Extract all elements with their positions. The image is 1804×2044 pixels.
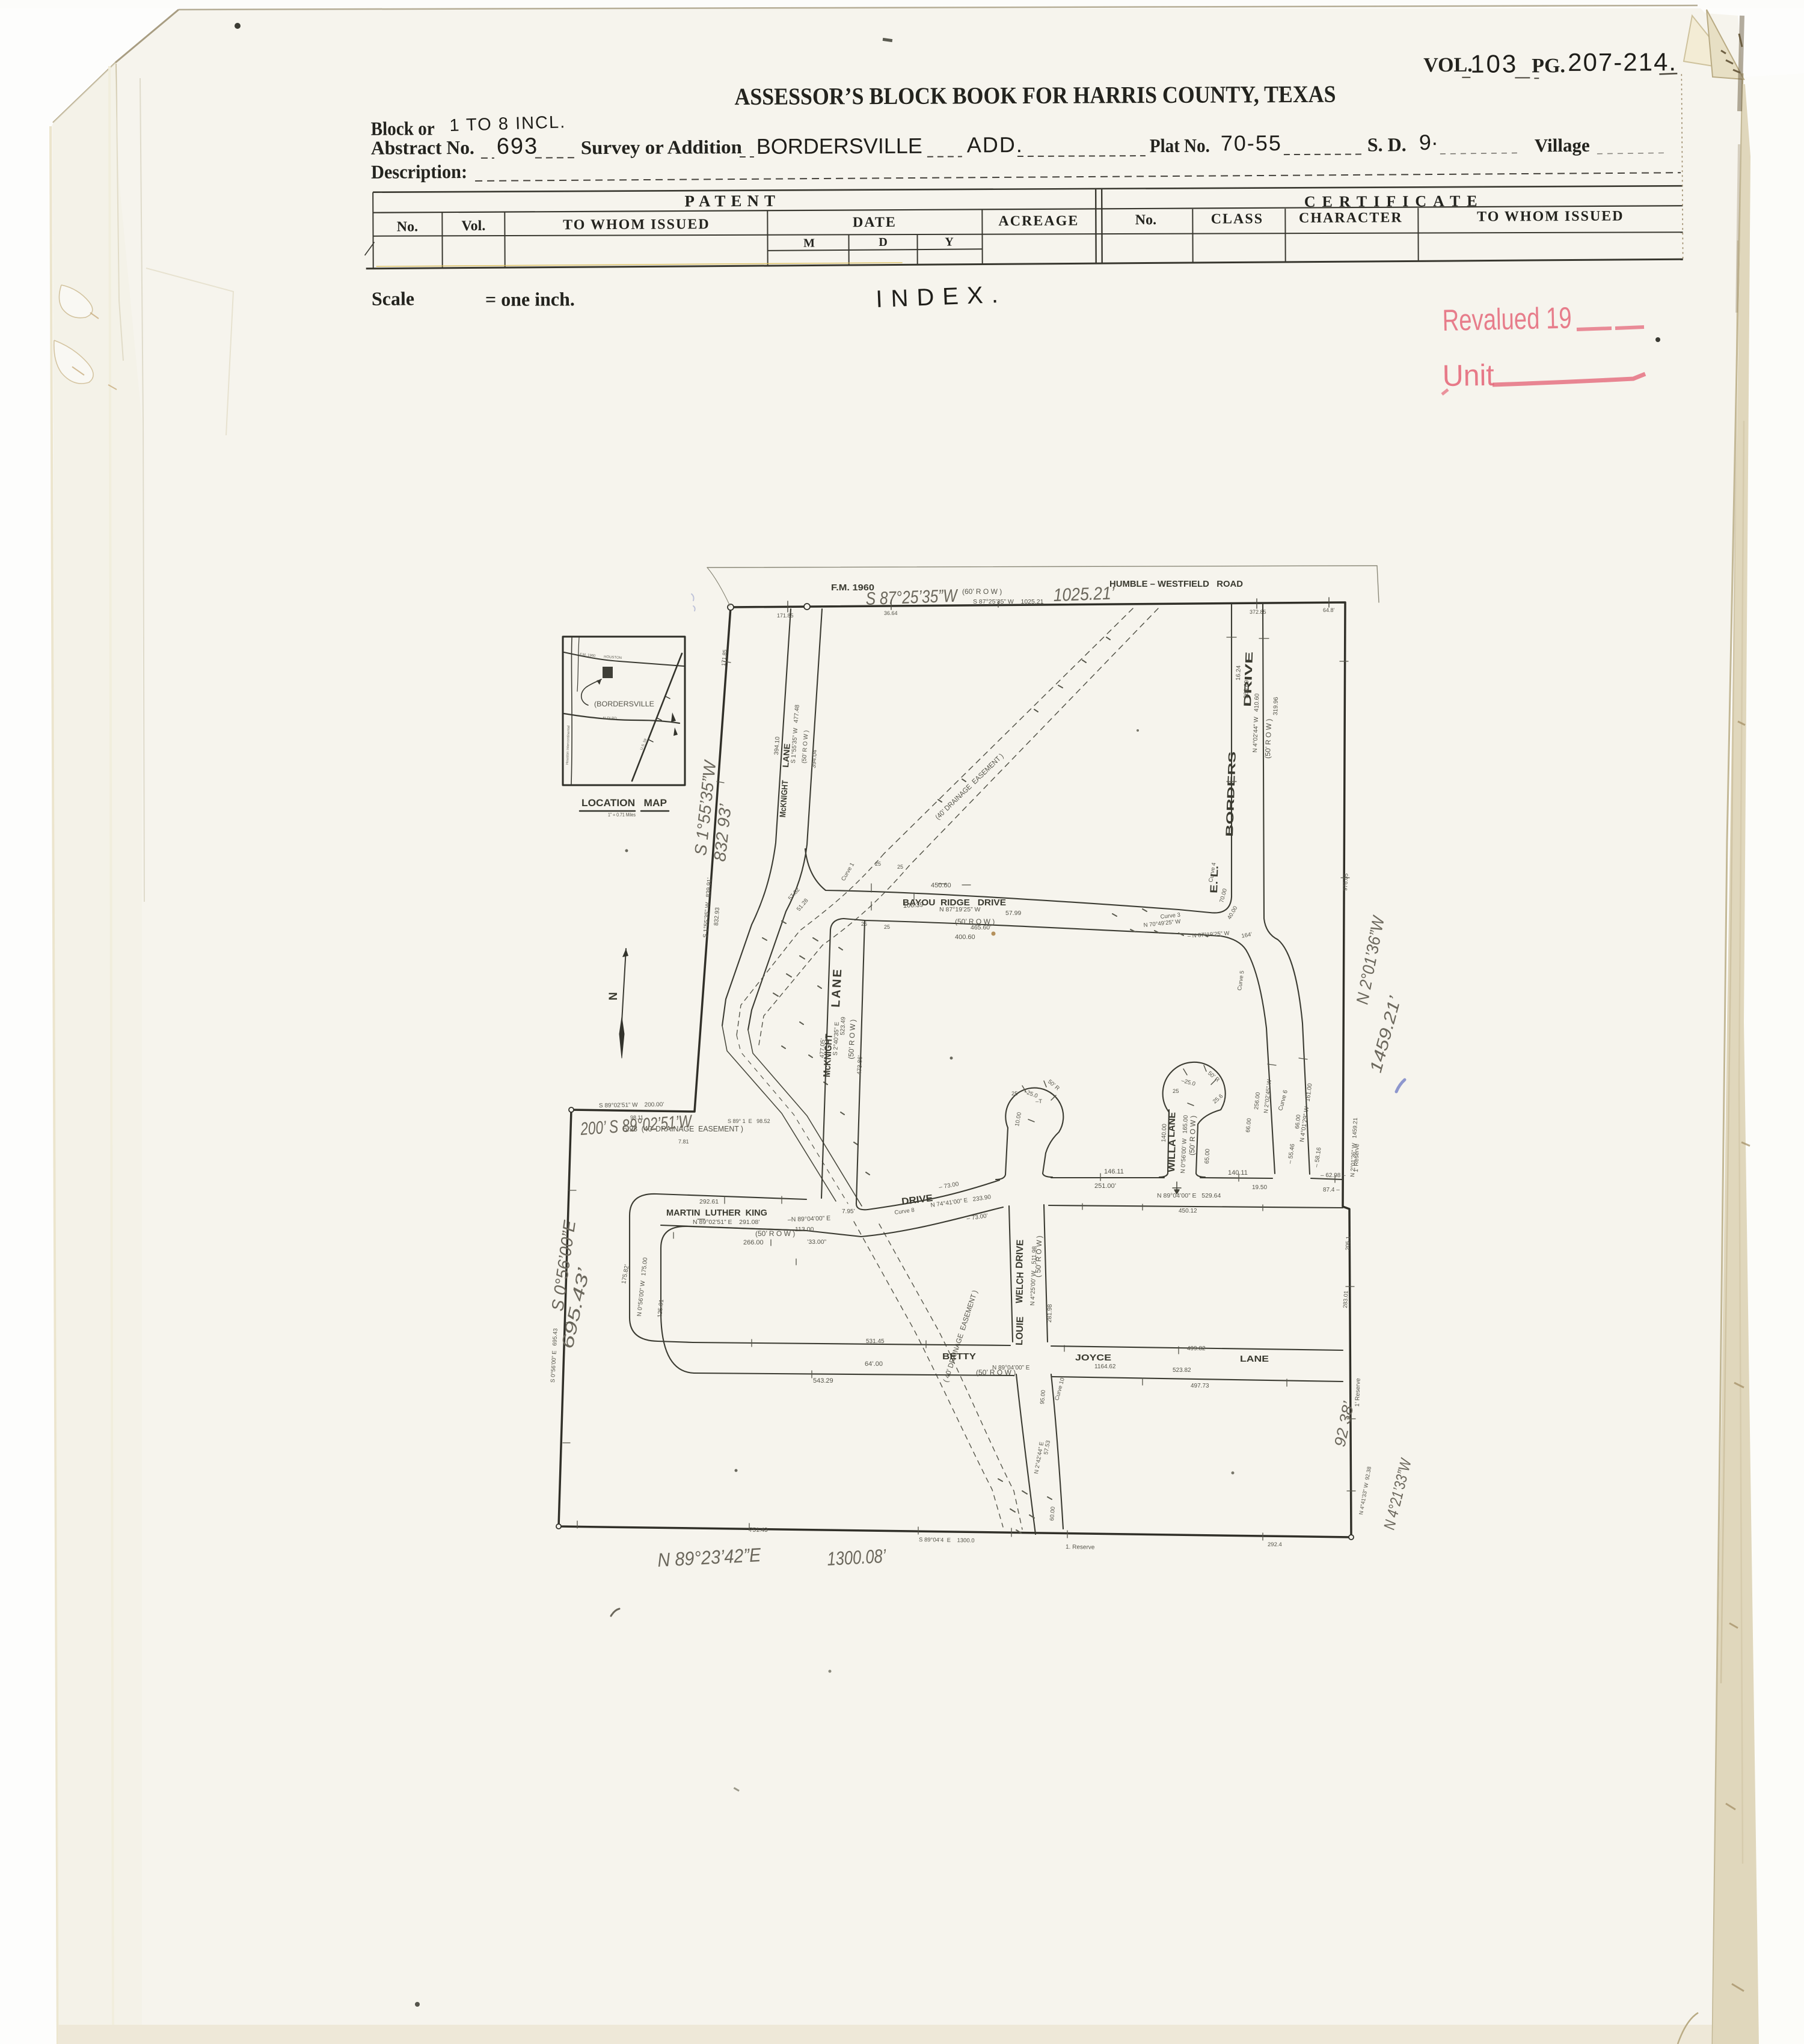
svg-text:251.00’: 251.00’	[1094, 1183, 1116, 1190]
svg-text:N: N	[607, 992, 620, 1000]
svg-text:25: 25	[897, 864, 903, 870]
svg-text:TO WHOM ISSUED: TO WHOM ISSUED	[563, 216, 710, 233]
svg-text:1’ Reserve: 1’ Reserve	[1353, 1143, 1361, 1172]
svg-text:TO WHOM ISSUED: TO WHOM ISSUED	[1477, 209, 1624, 225]
svg-text:281.98: 281.98	[1046, 1304, 1054, 1323]
svg-text:LANE: LANE	[829, 967, 844, 1008]
svg-text:(BORDERSVILLE: (BORDERSVILLE	[594, 700, 654, 708]
svg-text:HUMBLE – WESTFIELD ROAD: HUMBLE – WESTFIELD ROAD	[1109, 579, 1243, 589]
svg-text:400.60: 400.60	[955, 934, 975, 941]
svg-text:499.82: 499.82	[1187, 1345, 1206, 1352]
svg-text:7.95’: 7.95’	[842, 1208, 855, 1215]
svg-text:103: 103	[1470, 49, 1518, 78]
svg-text:207-214.: 207-214.	[1568, 47, 1677, 76]
svg-text:25: 25	[875, 861, 881, 867]
svg-text:S 89° 1 E 98.52: S 89° 1 E 98.52	[728, 1118, 770, 1124]
svg-text:VOL.: VOL.	[1423, 54, 1473, 76]
svg-text:Scale: Scale	[372, 287, 414, 309]
svg-text:(50’ R O W ): (50’ R O W )	[755, 1229, 795, 1238]
svg-text:LANE: LANE	[1167, 1112, 1177, 1137]
svg-text:CLASS: CLASS	[1211, 211, 1263, 227]
svg-text:No.: No.	[397, 219, 418, 234]
svg-text:450.12: 450.12	[1179, 1208, 1197, 1214]
svg-text:87.4 –: 87.4 –	[1323, 1187, 1340, 1193]
svg-text:BETTY: BETTY	[942, 1351, 976, 1362]
svg-text:140.00: 140.00	[1161, 1124, 1168, 1143]
svg-text:’33.00”: ’33.00”	[807, 1238, 827, 1246]
svg-text:LOUIE: LOUIE	[1014, 1316, 1026, 1345]
svg-text:(60’ R O W ): (60’ R O W )	[962, 587, 1002, 596]
svg-text:INDEX.: INDEX.	[876, 281, 1007, 313]
svg-text:360.60: 360.60	[1243, 680, 1250, 699]
svg-text:319.96: 319.96	[1272, 697, 1280, 715]
svg-text:205.1: 205.1	[1345, 1236, 1352, 1250]
svg-text:19.50: 19.50	[1252, 1184, 1267, 1191]
svg-text:283.01: 283.01	[1342, 1291, 1350, 1309]
svg-text:1” = 0.71 Miles: 1” = 0.71 Miles	[608, 812, 636, 818]
svg-text:Village: Village	[1535, 135, 1590, 156]
svg-text:M: M	[803, 237, 815, 250]
svg-text:473.86’: 473.86’	[856, 1055, 864, 1075]
svg-text:– 62.98 –: – 62.98 –	[1321, 1172, 1346, 1179]
svg-text:497.73: 497.73	[1191, 1383, 1209, 1389]
svg-text:57.99: 57.99	[1005, 910, 1021, 917]
svg-text:292.61: 292.61	[699, 1198, 719, 1205]
svg-text:751.43: 751.43	[749, 1527, 768, 1534]
svg-text:477.05’: 477.05’	[819, 1038, 827, 1058]
svg-text:ACREAGE: ACREAGE	[998, 213, 1079, 230]
svg-text:JOYCE: JOYCE	[1075, 1353, 1111, 1363]
svg-text:140.11: 140.11	[1228, 1169, 1248, 1177]
svg-text:531.45: 531.45	[866, 1338, 885, 1345]
svg-text:523.49: 523.49	[839, 1017, 847, 1036]
svg-text:DATE: DATE	[853, 215, 897, 230]
svg-text:N 89°04’00” E 529.64: N 89°04’00” E 529.64	[1157, 1192, 1221, 1199]
svg-text:CHARACTER: CHARACTER	[1299, 210, 1403, 226]
svg-text:Plat No.: Plat No.	[1150, 135, 1210, 156]
svg-text:D: D	[879, 236, 888, 249]
svg-text:Y: Y	[945, 235, 954, 248]
svg-text:Revalued 19: Revalued 19	[1442, 301, 1572, 337]
svg-text:MARTIN LUTHER KING: MARTIN LUTHER KING	[666, 1208, 767, 1218]
svg-text:60.00: 60.00	[1049, 1507, 1057, 1522]
svg-text:LANE: LANE	[1240, 1354, 1269, 1364]
svg-text:WILLA: WILLA	[1167, 1139, 1178, 1172]
svg-text:64.8’: 64.8’	[1323, 607, 1335, 613]
svg-text:146.11: 146.11	[1104, 1168, 1124, 1175]
svg-text:No.: No.	[1135, 212, 1156, 228]
svg-text:PATENT: PATENT	[684, 192, 781, 210]
svg-text:976.05: 976.05	[1342, 874, 1350, 892]
svg-text:372.85: 372.85	[1250, 609, 1266, 615]
svg-text:36.64: 36.64	[884, 610, 898, 616]
svg-text:113.00: 113.00	[795, 1226, 814, 1233]
svg-text:266.00: 266.00	[743, 1239, 764, 1246]
svg-text:N 89°02’51” E 291.08’: N 89°02’51” E 291.08’	[693, 1219, 760, 1226]
svg-text:ADD.: ADD.	[967, 132, 1023, 157]
svg-text:1164.62: 1164.62	[1094, 1363, 1116, 1370]
svg-text:LOCATION MAP: LOCATION MAP	[581, 797, 667, 809]
svg-text:N 87°19’25” W: N 87°19’25” W	[939, 906, 980, 913]
svg-text:1. Reserve: 1. Reserve	[1066, 1544, 1095, 1551]
svg-text:64’.00: 64’.00	[865, 1360, 883, 1368]
svg-text:25: 25	[884, 924, 890, 930]
svg-text:1’ Reserve: 1’ Reserve	[1354, 1378, 1362, 1407]
svg-text:25: 25	[1011, 1091, 1018, 1097]
svg-text:693: 693	[497, 134, 539, 159]
svg-text:95.00: 95.00	[1039, 1390, 1047, 1405]
svg-text:S 89°02’51” W 200.00’: S 89°02’51” W 200.00’	[599, 1101, 664, 1109]
svg-text:394.10: 394.10	[773, 736, 781, 755]
svg-text:PG.: PG.	[1532, 55, 1565, 77]
svg-text:Description:: Description:	[371, 161, 467, 183]
svg-text:S 89°04’4 E 1300.0: S 89°04’4 E 1300.0	[919, 1537, 975, 1544]
svg-text:Vol.: Vol.	[461, 218, 485, 234]
svg-text:S 87°25’35”W: S 87°25’35”W	[865, 586, 959, 609]
svg-text:(50’ R O W ): (50’ R O W )	[976, 1368, 1016, 1377]
svg-text:ALDI RD: ALDI RD	[603, 717, 618, 721]
svg-text:7.81: 7.81	[678, 1139, 689, 1145]
svg-text:WELCH: WELCH	[1014, 1272, 1026, 1304]
svg-text:S 87°25’35” W 1025.21: S 87°25’35” W 1025.21	[973, 598, 1044, 605]
svg-text:Unit: Unit	[1442, 358, 1494, 393]
svg-text:292.4: 292.4	[1268, 1541, 1282, 1548]
svg-text:= one inch.: = one inch.	[485, 288, 575, 310]
svg-text:BORDERSVILLE: BORDERSVILLE	[756, 133, 922, 159]
svg-text:9·: 9·	[1419, 130, 1438, 155]
svg-text:16.24: 16.24	[1235, 665, 1242, 681]
svg-text:S. D.: S. D.	[1367, 133, 1407, 155]
svg-text:1300.08’: 1300.08’	[826, 1545, 886, 1570]
svg-text:70-55: 70-55	[1221, 130, 1282, 155]
svg-text:450.60: 450.60	[931, 882, 951, 889]
svg-text:Abstract No.: Abstract No.	[371, 136, 474, 159]
svg-text:1 TO 8 INCL.: 1 TO 8 INCL.	[449, 112, 566, 135]
svg-text:Survey or Addition: Survey or Addition	[581, 136, 742, 158]
svg-text:832.93: 832.93	[713, 907, 721, 926]
svg-text:543.29: 543.29	[813, 1377, 833, 1385]
svg-text:–N 89°04’00” E: –N 89°04’00” E	[788, 1215, 831, 1223]
svg-text:25: 25	[1173, 1088, 1179, 1095]
svg-text:394.04: 394.04	[811, 749, 818, 768]
svg-text:DRIVE: DRIVE	[1014, 1239, 1026, 1268]
svg-text:65.00: 65.00	[1204, 1148, 1211, 1164]
svg-text:Block or: Block or	[371, 117, 435, 139]
svg-text:–T: –T	[1035, 1098, 1042, 1105]
svg-text:(50’ R O W ): (50’ R O W )	[1263, 718, 1273, 759]
svg-text:(50’ R O W ): (50’ R O W )	[955, 917, 995, 926]
svg-text:1025.21’: 1025.21’	[1053, 583, 1115, 605]
svg-text:ASSESSOR’S BLOCK BOOK FOR HARR: ASSESSOR’S BLOCK BOOK FOR HARRIS COUNTY,…	[734, 81, 1336, 110]
svg-text:106.39: 106.39	[903, 901, 924, 910]
svg-text:523.82: 523.82	[1173, 1367, 1191, 1374]
